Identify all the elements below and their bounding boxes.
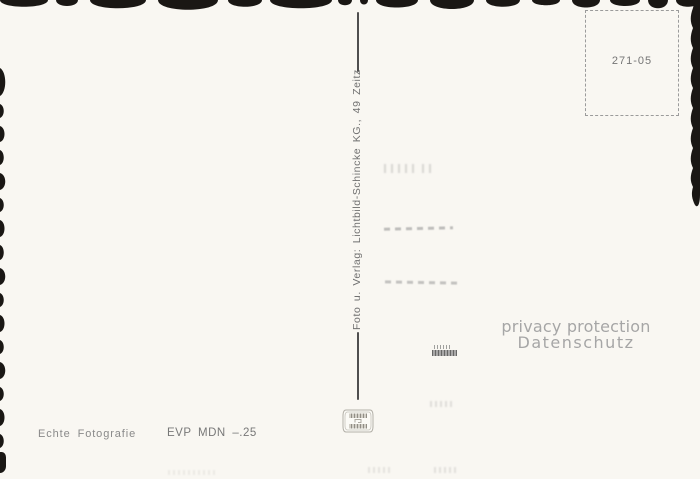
photo-type-label: Echte Fotografie — [38, 428, 136, 440]
privacy-watermark: privacy protection Datenschutz — [488, 318, 664, 351]
address-dash-line — [384, 226, 453, 230]
privacy-watermark-line1: privacy protection — [488, 318, 664, 335]
publisher-logo-icon — [342, 408, 374, 434]
scratched-out-mark — [432, 345, 458, 358]
address-dash-line — [385, 280, 458, 284]
smudge-mark — [430, 401, 452, 407]
stamp-box-code: 271-05 — [586, 55, 678, 67]
stamp-box: 271-05 — [585, 10, 679, 116]
smudge-mark — [368, 467, 392, 473]
publisher-imprint: Foto u. Verlag: Lichtbild-Schincke KG., … — [351, 74, 365, 330]
erased-writing-mark — [384, 164, 418, 173]
privacy-watermark-line2: Datenschutz — [488, 334, 664, 351]
price-label: EVP MDN –.25 — [167, 427, 257, 439]
divider-line-bottom — [357, 332, 359, 400]
postcard-back: 271-05 Foto u. Verlag: Lichtbild-Schinck… — [0, 0, 700, 479]
smudge-mark — [168, 470, 218, 475]
scratch-bar — [434, 345, 451, 349]
erased-writing-mark — [422, 164, 434, 173]
deckle-edge-right-icon — [690, 0, 700, 212]
divider-line-top — [357, 12, 359, 72]
scratch-bar — [432, 350, 457, 356]
smudge-mark — [434, 467, 458, 473]
deckle-edge-left-icon — [0, 0, 9, 479]
